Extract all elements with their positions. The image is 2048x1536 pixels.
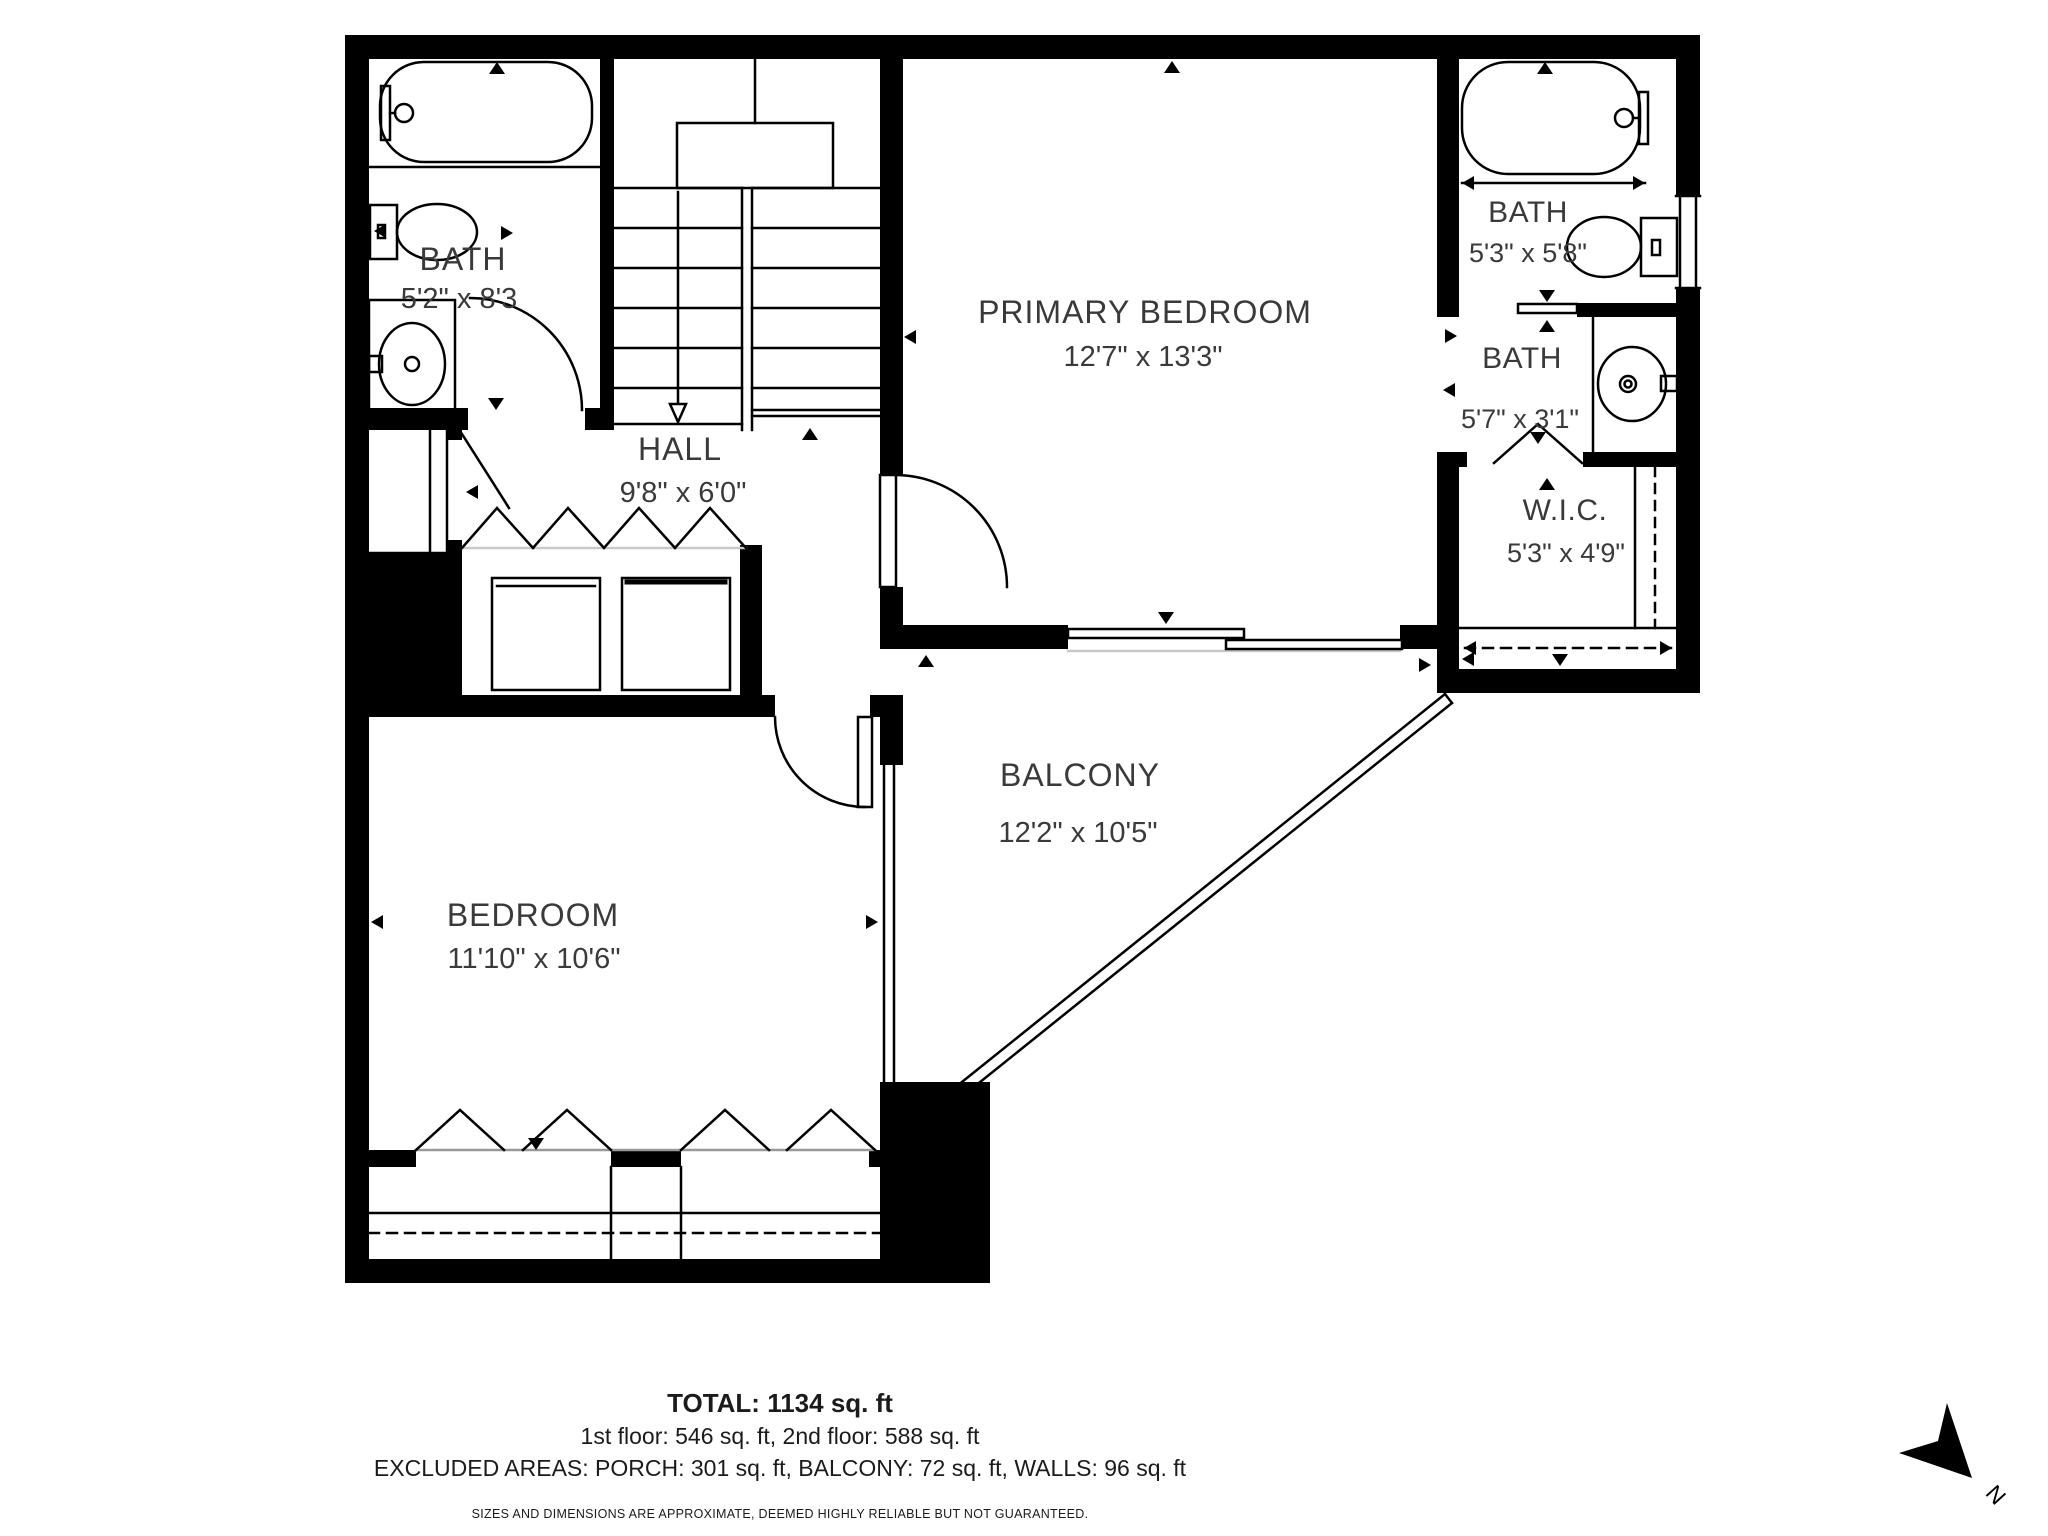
room-dims-balcony: 12'2" x 10'5": [998, 817, 1157, 849]
room-dims-bath-mid-right: 5'7" x 3'1": [1461, 404, 1579, 434]
summary-total: TOTAL: 1134 sq. ft: [667, 1388, 893, 1418]
pocket-door: [1518, 304, 1577, 313]
bedroom-side-window: [884, 765, 894, 1082]
summary-excluded: EXCLUDED AREAS: PORCH: 301 sq. ft, BALCO…: [374, 1455, 1187, 1481]
north-compass: N: [1899, 1403, 2011, 1510]
appliance-left: [492, 578, 600, 690]
staircase: [614, 59, 880, 430]
stairs-down-arrow: [670, 404, 686, 422]
hall-closet-niche: [369, 427, 509, 553]
room-label-bath-mid-right: BATH: [1482, 342, 1562, 375]
summary-block: TOTAL: 1134 sq. ft 1st floor: 546 sq. ft…: [374, 1388, 1187, 1521]
room-label-wic: W.I.C.: [1523, 494, 1608, 527]
summary-floors: 1st floor: 546 sq. ft, 2nd floor: 588 sq…: [581, 1423, 981, 1449]
summary-disclaimer: SIZES AND DIMENSIONS ARE APPROXIMATE, DE…: [472, 1507, 1089, 1521]
room-label-bath-top-right: BATH: [1488, 196, 1568, 229]
room-dims-bath-upper-left: 5'2" x 8'3: [401, 283, 518, 315]
room-label-hall: HALL: [638, 431, 722, 467]
room-label-bath-upper-left: BATH: [420, 241, 507, 277]
floor-plan: BATH 5'2" x 8'3 HALL 9'8" x 6'0" PRIMARY…: [0, 0, 2048, 1536]
floor-plan-page: BATH 5'2" x 8'3 HALL 9'8" x 6'0" PRIMARY…: [0, 0, 2048, 1536]
bedroom-bottom-windows: [369, 1110, 890, 1259]
primary-bedroom-door: [880, 475, 1007, 587]
bathtub-left-icon: [380, 62, 592, 162]
room-dims-hall: 9'8" x 6'0": [620, 477, 747, 509]
vanity-sink-right-icon: [1593, 317, 1677, 452]
room-dims-bedroom: 11'10" x 10'6": [447, 943, 620, 975]
north-arrow-icon: [1899, 1403, 1972, 1478]
balcony-railing: [957, 694, 1452, 1095]
appliance-right: [622, 578, 730, 690]
room-dims-bath-top-right: 5'3" x 5'8": [1469, 238, 1587, 268]
room-label-primary-bedroom: PRIMARY BEDROOM: [978, 294, 1312, 330]
bedroom-door: [775, 717, 872, 807]
bathtub-right-icon: [1462, 62, 1648, 174]
room-dims-primary-bedroom: 12'7" x 13'3": [1063, 341, 1222, 373]
north-label: N: [1981, 1480, 2011, 1510]
balcony-sliding-door: [1068, 629, 1402, 651]
room-dims-wic: 5'3" x 4'9": [1507, 538, 1625, 568]
dimension-arrows: [371, 61, 1672, 1150]
room-label-bedroom: BEDROOM: [447, 897, 619, 933]
bifold-doors: [462, 508, 746, 548]
room-label-balcony: BALCONY: [1000, 757, 1160, 793]
